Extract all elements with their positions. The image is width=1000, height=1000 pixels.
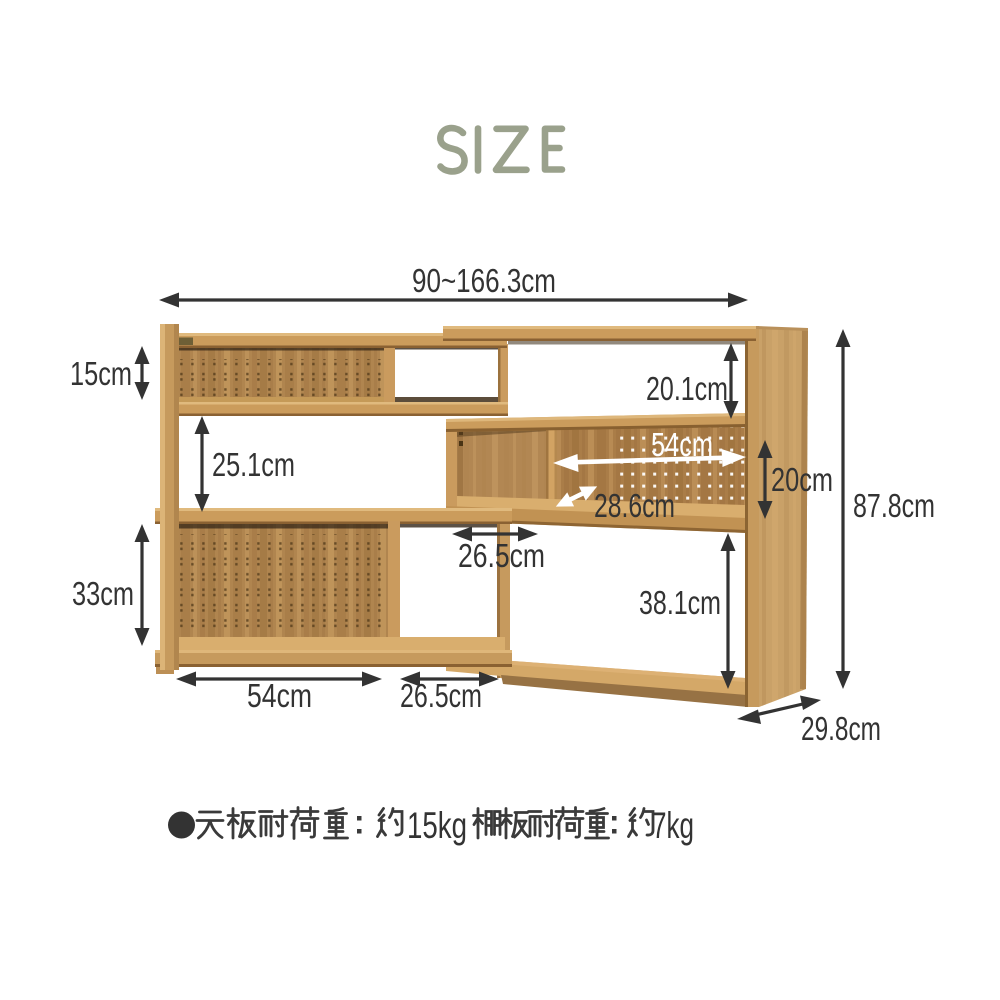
svg-text:54cm: 54cm bbox=[247, 677, 312, 714]
svg-text:26.5cm: 26.5cm bbox=[400, 677, 482, 714]
svg-text:90~166.3cm: 90~166.3cm bbox=[412, 262, 556, 299]
svg-text:25.1cm: 25.1cm bbox=[212, 446, 295, 483]
svg-text:15kg: 15kg bbox=[407, 805, 467, 846]
svg-text:15cm: 15cm bbox=[70, 355, 132, 392]
svg-text:54cm: 54cm bbox=[651, 426, 713, 463]
svg-text:26.5cm: 26.5cm bbox=[458, 537, 545, 574]
svg-text:29.8cm: 29.8cm bbox=[801, 710, 881, 747]
svg-text:7kg: 7kg bbox=[652, 805, 694, 846]
svg-text:20cm: 20cm bbox=[771, 461, 833, 498]
svg-text:28.6cm: 28.6cm bbox=[594, 487, 675, 524]
svg-text:87.8cm: 87.8cm bbox=[853, 487, 935, 524]
svg-text:33cm: 33cm bbox=[72, 575, 134, 612]
svg-text:38.1cm: 38.1cm bbox=[639, 584, 721, 621]
svg-text:20.1cm: 20.1cm bbox=[646, 370, 728, 407]
